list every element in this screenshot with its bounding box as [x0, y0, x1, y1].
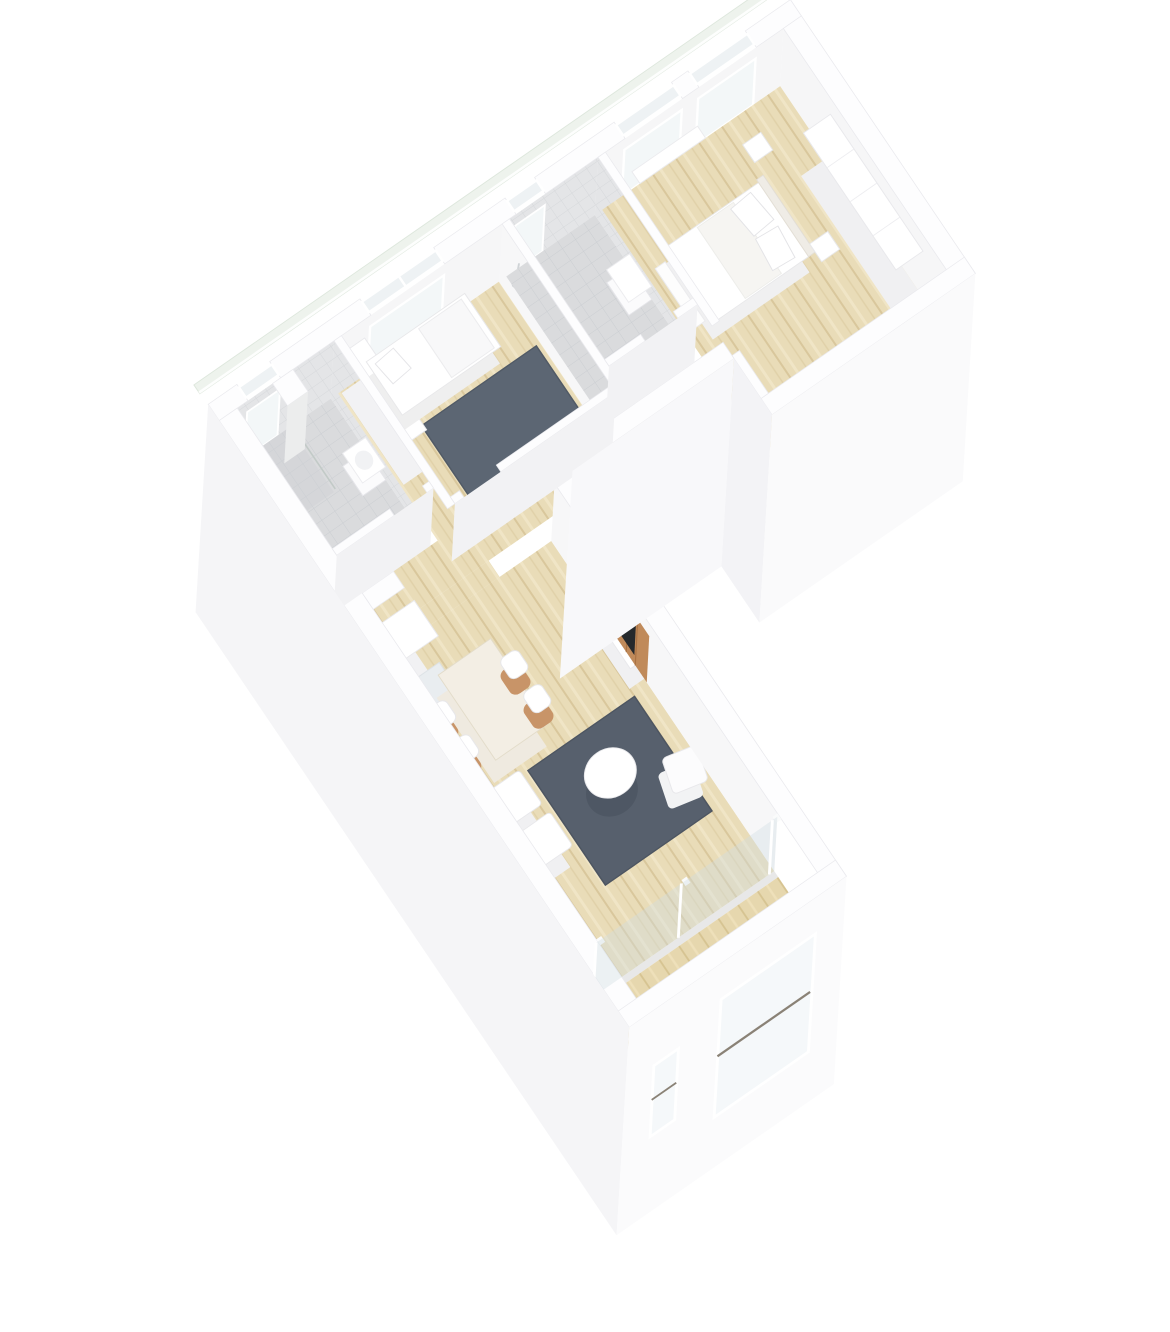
floor-plan-stage: [0, 0, 1170, 1332]
floor-plan-render: [0, 0, 1170, 1332]
